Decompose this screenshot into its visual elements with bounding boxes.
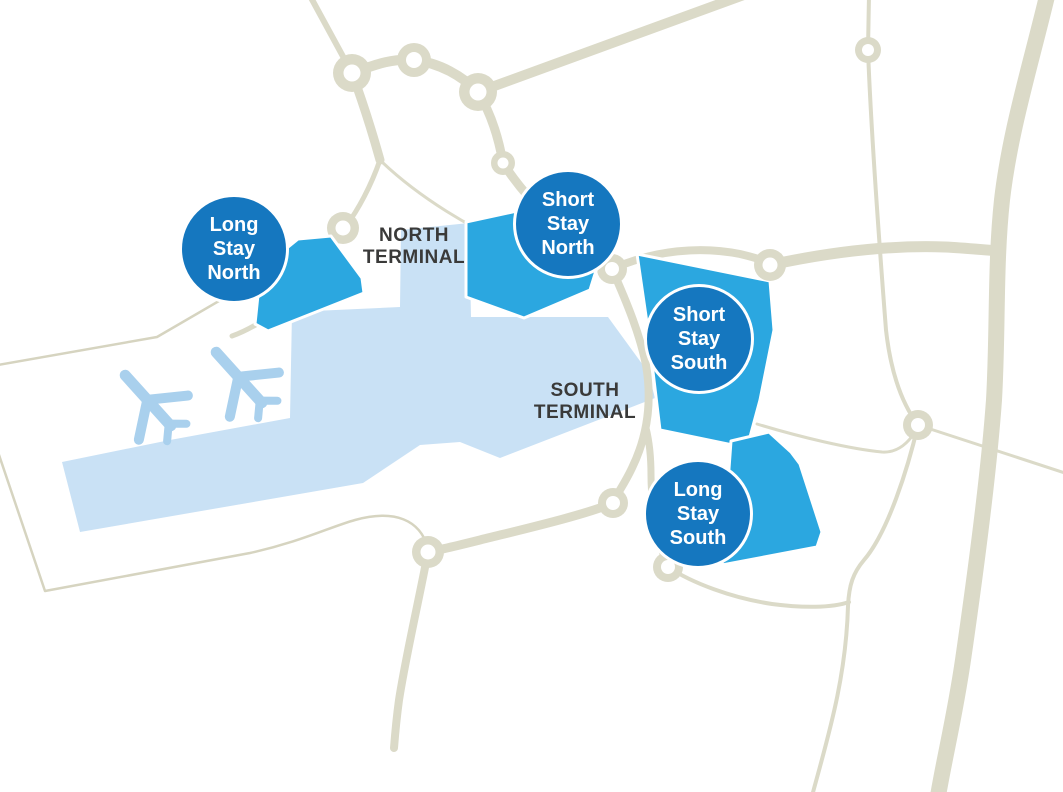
terminal-label-line: TERMINAL bbox=[534, 402, 636, 424]
road bbox=[770, 247, 1000, 265]
road-junction-icon bbox=[754, 249, 786, 281]
badge-label-line: South bbox=[671, 351, 728, 375]
parking-badge-short-stay-north[interactable]: Short Stay North bbox=[513, 169, 623, 279]
road bbox=[478, 0, 752, 92]
badge-label-line: Long bbox=[674, 478, 723, 502]
badge-label-line: South bbox=[670, 526, 727, 550]
badge-label-line: Short bbox=[542, 188, 594, 212]
badge-label-line: Stay bbox=[677, 502, 719, 526]
terminal-label-line: TERMINAL bbox=[363, 247, 465, 269]
badge-label-line: North bbox=[541, 236, 594, 260]
road bbox=[868, 50, 918, 425]
road bbox=[428, 503, 613, 552]
badge-label-line: Stay bbox=[547, 212, 589, 236]
road-junction-icon bbox=[459, 73, 497, 111]
terminal-label-line: NORTH bbox=[363, 225, 465, 247]
road bbox=[812, 425, 918, 792]
parking-badge-long-stay-south[interactable]: Long Stay South bbox=[643, 459, 753, 569]
badge-label-line: Long bbox=[210, 213, 259, 237]
badge-label-line: Stay bbox=[678, 327, 720, 351]
map-canvas bbox=[0, 0, 1063, 792]
terminal-label-line: SOUTH bbox=[534, 380, 636, 402]
badge-label-line: North bbox=[207, 261, 260, 285]
parking-badge-long-stay-north[interactable]: Long Stay North bbox=[179, 194, 289, 304]
road-junction-icon bbox=[333, 54, 371, 92]
badge-label-line: Short bbox=[673, 303, 725, 327]
road-junction-icon bbox=[491, 151, 515, 175]
road-junction-icon bbox=[412, 536, 444, 568]
road-junction-icon bbox=[598, 488, 628, 518]
road-junction-icon bbox=[855, 37, 881, 63]
road bbox=[394, 552, 428, 748]
road bbox=[938, 0, 1048, 792]
terminal-label-south: SOUTH TERMINAL bbox=[534, 380, 636, 424]
airport-parking-map: Long Stay North Short Stay North Short S… bbox=[0, 0, 1063, 792]
terminal-label-north: NORTH TERMINAL bbox=[363, 225, 465, 269]
badge-label-line: Stay bbox=[213, 237, 255, 261]
road bbox=[668, 567, 849, 607]
parking-badge-short-stay-south[interactable]: Short Stay South bbox=[644, 284, 754, 394]
road-junction-icon bbox=[397, 43, 431, 77]
airplane-icon bbox=[192, 330, 293, 431]
road-junction-icon bbox=[903, 410, 933, 440]
